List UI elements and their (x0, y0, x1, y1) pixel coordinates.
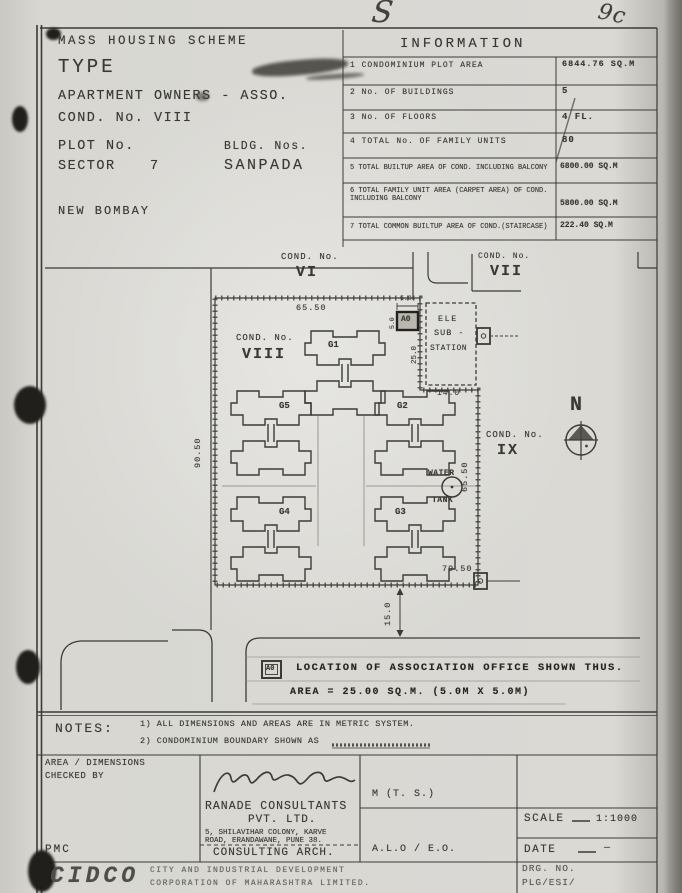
plot-no-label: PLOT No. (58, 139, 135, 155)
cidco-logo: CIDCO (50, 863, 139, 889)
sector-label: SECTOR (58, 159, 116, 175)
office-dim-line (397, 303, 418, 310)
node-name: SANPADA (224, 157, 305, 174)
owner-association-line: APARTMENT OWNERS - ASSO. (58, 89, 288, 105)
ele-substation-label: STATION (430, 344, 467, 353)
internal-paths (222, 416, 476, 546)
dim-ele-width: 14.0 (437, 389, 460, 398)
info-table-title: INFORMATION (400, 36, 525, 52)
corporation-name: CITY AND INDUSTRIAL DEVELOPMENT (150, 866, 345, 875)
road-width-arrow (397, 588, 404, 637)
aloeo-cell: A.L.O / E.O. (372, 844, 456, 856)
scan-blob (16, 650, 40, 684)
legend-text: LOCATION OF ASSOCIATION OFFICE SHOWN THU… (296, 662, 624, 674)
mts-cell: M (T. S.) (372, 789, 435, 801)
consultant-address: ROAD, ERANDAWANE, PUNE 38. (205, 837, 322, 846)
north-arrow (564, 421, 598, 460)
drg-no-label: DRG. NO. (522, 864, 576, 875)
cond-vii: VII (490, 263, 523, 280)
bldg-nos-label: BLDG. Nos. (224, 140, 308, 153)
pmc-label: PMC (45, 844, 71, 857)
info-row-value: 6844.76 SQ.M (562, 60, 635, 70)
note-2: 2) CONDOMINIUM BOUNDARY SHOWN AS (140, 737, 319, 747)
dash-marks (572, 821, 596, 852)
building-label-g1: G1 (328, 340, 339, 350)
consulting-arch-label: CONSULTING ARCH. (213, 847, 335, 860)
checked-by-label: CHECKED BY (45, 771, 104, 781)
signature-path (214, 772, 355, 792)
notes-separators (37, 712, 657, 748)
dim-left: 90.50 (194, 437, 204, 468)
notes-label: NOTES: (55, 722, 114, 737)
checked-by-label: AREA / DIMENSIONS (45, 758, 145, 768)
info-row-value: 5800.00 SQ.M (560, 199, 618, 208)
cond-vii-label: COND. No. (478, 252, 530, 261)
ele-substation-label: SUB - (434, 329, 465, 339)
info-row-value: 6800.00 SQ.M (560, 162, 618, 171)
info-row-value: 5 (562, 86, 568, 96)
info-row-label: 5 TOTAL BUILTUP AREA OF COND. INCLUDING … (350, 164, 547, 172)
info-row-label: 4 TOTAL No. OF FAMILY UNITS (350, 137, 507, 146)
city-name: NEW BOMBAY (58, 205, 150, 219)
info-row-label: 7 TOTAL COMMON BUILTUP AREA OF COND.(STA… (350, 223, 547, 231)
cond-ix-label: COND. No. (486, 430, 544, 440)
dim-top: 65.50 (296, 304, 327, 314)
info-row-label: 1 CONDOMINIUM PLOT AREA (350, 61, 483, 70)
scan-blob (14, 386, 46, 424)
sector-number: 7 (150, 159, 159, 175)
consultant-name: RANADE CONSULTANTS (205, 800, 347, 813)
drg-no-value: PLG/ESI/ (522, 878, 576, 889)
water-tank-label: WATER (428, 469, 455, 478)
cond-viii: VIII (242, 346, 286, 363)
consultant-name: PVT. LTD. (248, 814, 316, 827)
cond-viii-label: COND. No. (236, 333, 294, 343)
info-row-label: 3 No. OF FLOORS (350, 113, 437, 122)
scanned-drawing-sheet: S 9c MASS HOUSING SCHEME TYPE APARTMENT … (0, 0, 682, 893)
north-letter: N (570, 394, 583, 417)
building-label-g5: G5 (279, 401, 290, 411)
ele-substation-label: ELE (438, 315, 458, 325)
dim-road: 15.0 (384, 602, 394, 626)
corporation-name: CORPORATION OF MAHARASHTRA LIMITED. (150, 879, 371, 888)
building-g5 (231, 391, 311, 475)
road-lines-top (45, 252, 657, 630)
cond-vi-label: COND. No. (281, 252, 339, 262)
building-label-g4: G4 (279, 507, 290, 517)
building-label-g3: G3 (395, 507, 406, 517)
handwritten-mark-top: S (370, 0, 396, 31)
legend-marker: A0 (266, 665, 274, 673)
legend-area-line: AREA = 25.00 SQ.M. (5.0M X 5.0M) (290, 687, 530, 699)
scale-value: 1:1000 (596, 814, 638, 826)
scan-blob (12, 106, 28, 132)
info-row-value: 80 (562, 135, 575, 145)
dim-right: 65.50 (461, 461, 471, 492)
cond-ix: IX (497, 442, 519, 459)
info-row-value: 4 FL. (562, 112, 594, 122)
water-tank-circle (442, 477, 462, 497)
office-marker: A0 (401, 315, 411, 324)
date-value: — (604, 843, 611, 855)
building-g2 (375, 391, 455, 475)
dim-ele-gap: 25.0 (411, 346, 420, 364)
building-g4 (231, 497, 311, 581)
condominium-number: COND. No. VIII (58, 111, 192, 127)
type-label: TYPE (58, 57, 116, 79)
info-row-value: 222.40 SQ.M (560, 221, 613, 230)
dim-office-w: 5.0 (400, 295, 412, 302)
building-g1 (305, 331, 385, 415)
date-label: DATE (524, 844, 556, 857)
scan-edge-shadow (664, 0, 682, 893)
info-row-label: 6 TOTAL FAMILY UNIT AREA (CARPET AREA) O… (350, 187, 550, 203)
dim-bottom: 79.50 (442, 565, 473, 575)
info-row-label: 2 No. OF BUILDINGS (350, 88, 454, 97)
scale-label: SCALE (524, 813, 565, 826)
water-tank-label: TANK (432, 496, 453, 505)
handwritten-stroke (556, 98, 575, 162)
dim-office-h: 5.0 (389, 317, 396, 329)
cond-vi: VI (296, 264, 318, 281)
scheme-title: MASS HOUSING SCHEME (58, 34, 248, 48)
building-label-g2: G2 (397, 401, 408, 411)
border-left (37, 25, 42, 893)
note-1: 1) ALL DIMENSIONS AND AREAS ARE IN METRI… (140, 720, 414, 730)
